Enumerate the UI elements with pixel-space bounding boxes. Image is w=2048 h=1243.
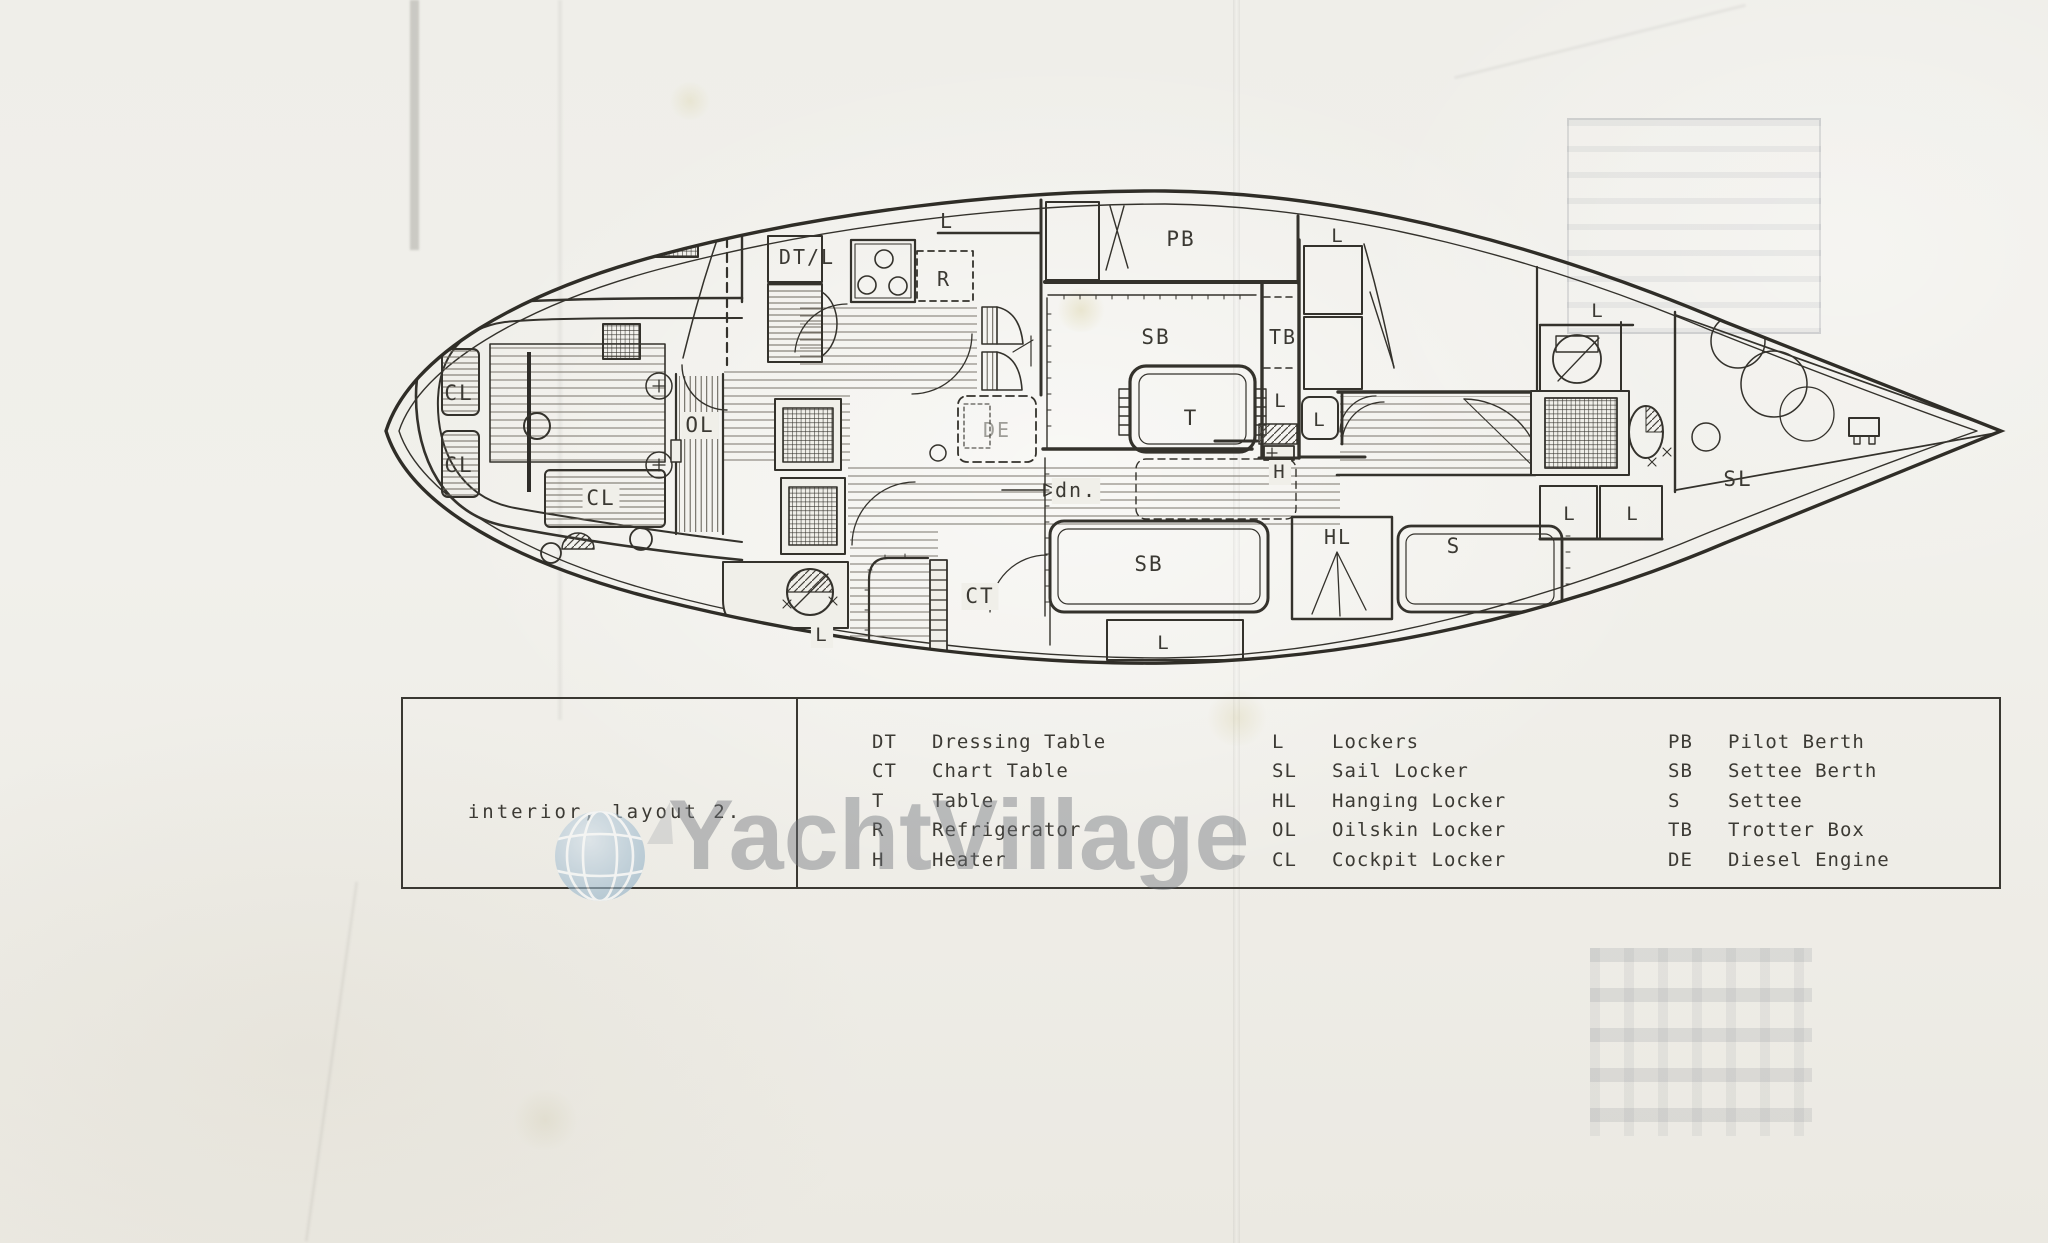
legend-abbr: SB [1668,760,1728,782]
legend-row: OLOilskin Locker [1272,816,1506,846]
legend-column-berths: PBPilot BerthSBSettee BerthSSetteeTBTrot… [1668,727,1890,875]
legend-row: CLCockpit Locker [1272,845,1506,875]
legend-label: Cockpit Locker [1332,849,1506,871]
plan-label-L: L [1591,300,1604,322]
legend-divider [796,699,798,887]
plan-label-DTL: DT/L [779,245,835,269]
plan-label-SL: SL [1723,467,1752,491]
plan-label-CL: CL [586,486,615,510]
legend-label: Oilskin Locker [1332,819,1506,841]
legend-label: Table [932,790,994,812]
legend-label: Diesel Engine [1728,849,1890,871]
plan-label-T: T [1184,406,1199,430]
plan-label-L: L [1331,225,1344,247]
legend-row: HLHanging Locker [1272,786,1506,816]
plan-label-S: S [1447,534,1462,558]
plan-title: interior, layout 2. [440,801,770,823]
yacht-interior-plan: CLCLCLOLDT/LLRPBLSBTBLTLHDEdn.SBLCTLHLSL… [0,0,2048,1243]
legend-row: SBSettee Berth [1668,757,1890,787]
plan-label-PB: PB [1166,227,1195,251]
legend-label: Hanging Locker [1332,790,1506,812]
legend-label: Sail Locker [1332,760,1469,782]
plan-label-L: L [940,209,954,233]
legend-row: CTChart Table [872,757,1106,787]
legend-abbr: H [872,849,932,871]
legend-label: Heater [932,849,1007,871]
legend-row: LLockers [1272,727,1506,757]
legend-abbr: L [1272,731,1332,753]
plan-label-SB: SB [1141,325,1170,349]
plan-label-R: R [937,267,951,291]
legend-label: Chart Table [932,760,1069,782]
scanned-yacht-layout-page: CLCLCLOLDT/LLRPBLSBTBLTLHDEdn.SBLCTLHLSL… [0,0,2048,1243]
plan-label-OL: OL [685,413,714,437]
plan-label-L: L [1313,409,1326,431]
plan-label-dn: dn. [1055,478,1097,502]
legend-abbr: HL [1272,790,1332,812]
plan-label-TB: TB [1269,325,1297,349]
legend-abbr: SL [1272,760,1332,782]
legend-abbr: OL [1272,819,1332,841]
legend-row: SLSail Locker [1272,757,1506,787]
plan-label-L: L [815,624,828,646]
legend-abbr: TB [1668,819,1728,841]
legend-label: Lockers [1332,731,1419,753]
legend-row: SSettee [1668,786,1890,816]
plan-label-L: L [1274,390,1287,412]
plan-label-DE: DE [983,418,1011,442]
legend-row: TBTrotter Box [1668,816,1890,846]
legend-abbr: CL [1272,849,1332,871]
legend-label: Refrigerator [932,819,1081,841]
plan-label-HL: HL [1324,525,1352,549]
legend-abbr: CT [872,760,932,782]
legend-row: TTable [872,786,1106,816]
legend-abbr: S [1668,790,1728,812]
legend-abbr: PB [1668,731,1728,753]
legend-abbr: DE [1668,849,1728,871]
legend-row: DTDressing Table [872,727,1106,757]
plan-label-CL: CL [444,381,473,405]
legend-row: PBPilot Berth [1668,727,1890,757]
legend-row: HHeater [872,845,1106,875]
legend-column-lockers: LLockersSLSail LockerHLHanging LockerOLO… [1272,727,1506,875]
legend-label: Settee [1728,790,1803,812]
legend-abbr: R [872,819,932,841]
plan-label-L: L [1157,632,1170,654]
legend-label: Dressing Table [932,731,1106,753]
plan-label-L: L [1626,503,1639,525]
plan-label-H: H [1273,461,1286,483]
legend-label: Pilot Berth [1728,731,1865,753]
plan-label-L: L [1563,503,1576,525]
legend-row: DEDiesel Engine [1668,845,1890,875]
plan-label-CL: CL [444,453,473,477]
legend-abbr: T [872,790,932,812]
legend-abbr: DT [872,731,932,753]
plan-label-CT: CT [965,584,994,608]
legend-label: Trotter Box [1728,819,1865,841]
legend-column-furniture: DTDressing TableCTChart TableTTableRRefr… [872,727,1106,875]
legend-row: RRefrigerator [872,816,1106,846]
plan-label-SB: SB [1134,552,1163,576]
legend-label: Settee Berth [1728,760,1877,782]
